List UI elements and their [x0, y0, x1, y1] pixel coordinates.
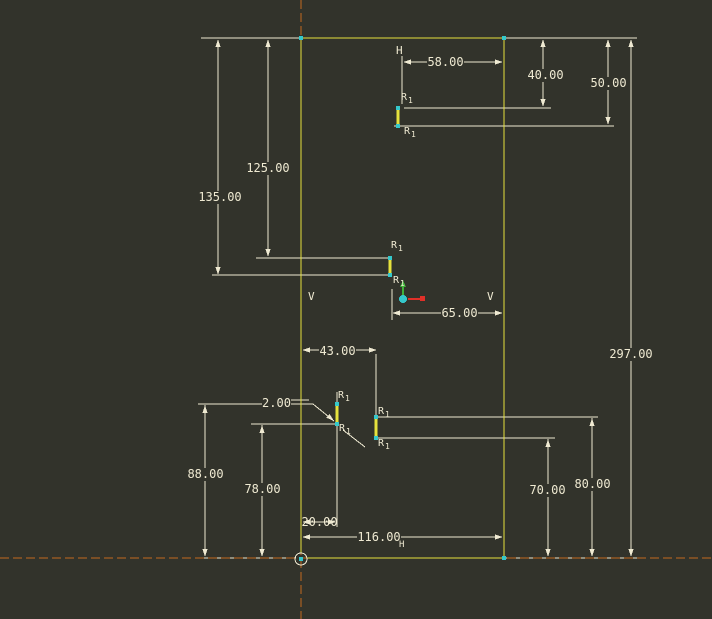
dimension-arrow-icon — [260, 549, 265, 557]
dimension-arrow-icon — [495, 535, 503, 540]
dimension-value-125[interactable]: 125.00 — [246, 162, 290, 175]
radius-label[interactable]: R1 — [401, 93, 412, 103]
radius-label[interactable]: R1 — [338, 391, 349, 401]
dimension-arrow-icon — [546, 439, 551, 447]
dimension-arrow-icon — [266, 39, 271, 47]
vertex-point[interactable] — [502, 556, 506, 560]
radius-label[interactable]: R1 — [404, 127, 415, 137]
radius-label[interactable]: R1 — [378, 439, 389, 449]
dimension-arrow-icon — [302, 535, 310, 540]
constraint-vertical-label-left[interactable]: V — [308, 291, 315, 303]
dimension-arrow-icon — [260, 425, 265, 433]
csys-x-axis-tip — [420, 296, 425, 301]
dimension-value-80[interactable]: 80.00 — [574, 478, 611, 491]
dimension-arrow-icon — [216, 39, 221, 47]
dimension-value-65[interactable]: 65.00 — [441, 307, 478, 320]
dimension-arrow-icon — [495, 311, 503, 316]
dimension-arrow-icon — [216, 267, 221, 275]
dimension-value-43[interactable]: 43.00 — [319, 345, 356, 358]
dim-2-leader-arrow — [326, 414, 334, 421]
vertex-point[interactable] — [335, 402, 339, 406]
constraint-vertical-label-right[interactable]: V — [487, 291, 494, 303]
dimension-value-135[interactable]: 135.00 — [198, 191, 242, 204]
dimension-arrow-icon — [495, 60, 503, 65]
dimension-arrow-icon — [403, 60, 411, 65]
dimension-arrow-icon — [546, 549, 551, 557]
dimension-value-70[interactable]: 70.00 — [529, 484, 566, 497]
csys-origin-point[interactable] — [399, 295, 407, 303]
dimension-arrow-icon — [302, 348, 310, 353]
dimension-116-suffix: H — [399, 540, 404, 550]
dimension-arrow-icon — [541, 99, 546, 107]
vertex-point[interactable] — [388, 273, 392, 277]
dimension-arrow-icon — [606, 39, 611, 47]
radius-label[interactable]: R1 — [393, 276, 404, 286]
dimension-arrow-icon — [203, 549, 208, 557]
dimension-value-20[interactable]: 20.00 — [301, 516, 338, 529]
vertex-point[interactable] — [299, 36, 303, 40]
dimension-value-88[interactable]: 88.00 — [187, 468, 224, 481]
dimension-arrow-icon — [629, 549, 634, 557]
dimension-value-40[interactable]: 40.00 — [527, 69, 564, 82]
dimension-value-78[interactable]: 78.00 — [244, 483, 281, 496]
vertex-point[interactable] — [299, 557, 303, 561]
dimension-value-297[interactable]: 297.00 — [609, 348, 653, 361]
radius-label[interactable]: R1 — [391, 241, 402, 251]
dimension-arrow-icon — [369, 348, 377, 353]
dimension-arrow-icon — [266, 249, 271, 257]
dimension-value-2[interactable]: 2.00 — [262, 397, 291, 410]
radius-label[interactable]: R1 — [339, 424, 350, 434]
vertex-point[interactable] — [502, 36, 506, 40]
dimension-arrow-icon — [629, 39, 634, 47]
dimension-arrow-icon — [392, 311, 400, 316]
sketch-viewport: 135.00 125.00 58.00 40.00 50.00 65.00 29… — [0, 0, 712, 619]
vertex-point[interactable] — [396, 106, 400, 110]
dimension-value-116[interactable]: 116.00 — [357, 531, 401, 544]
dimension-arrow-icon — [541, 39, 546, 47]
dimension-arrow-icon — [606, 117, 611, 125]
vertex-point[interactable] — [396, 124, 400, 128]
dimension-arrow-icon — [590, 549, 595, 557]
dimension-value-50[interactable]: 50.00 — [590, 77, 627, 90]
radius-label[interactable]: R1 — [378, 407, 389, 417]
dimension-arrow-icon — [590, 418, 595, 426]
sketch-canvas — [0, 0, 712, 619]
dimension-value-58[interactable]: 58.00 — [427, 56, 464, 69]
constraint-horizontal-label[interactable]: H — [396, 45, 403, 57]
vertex-point[interactable] — [388, 256, 392, 260]
dimension-arrow-icon — [203, 405, 208, 413]
